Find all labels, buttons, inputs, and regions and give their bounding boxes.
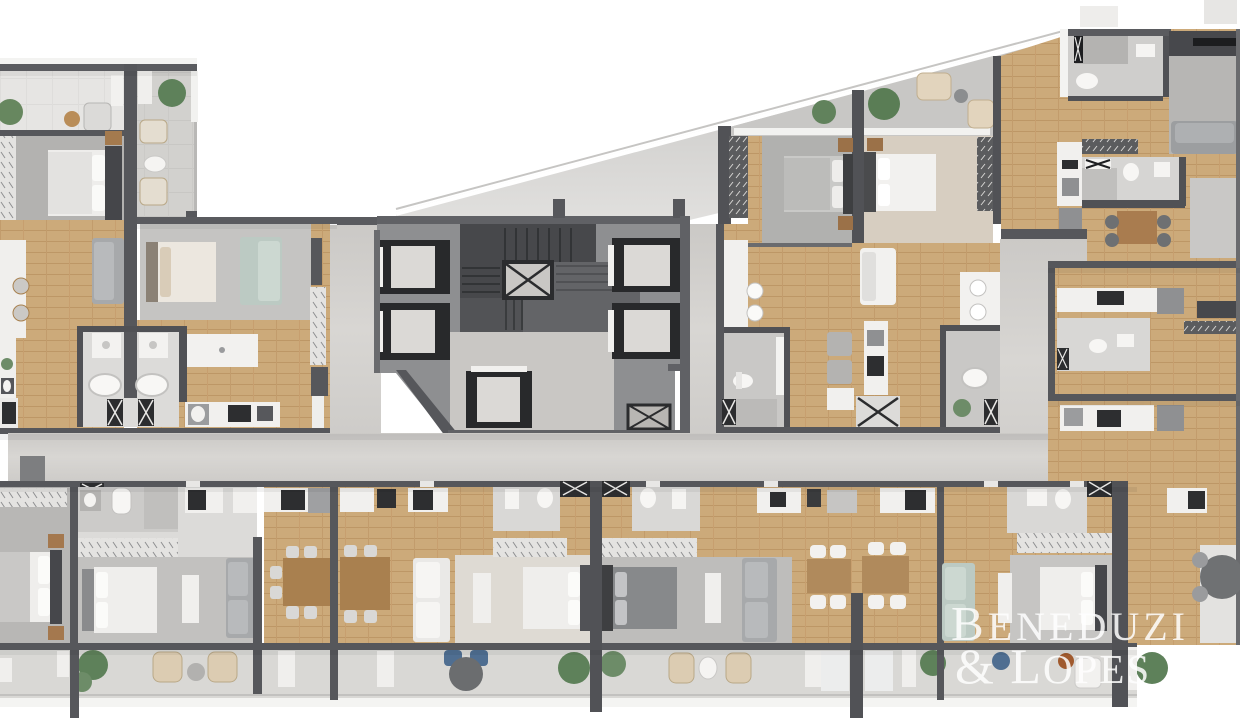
svg-text:& LOPES: & LOPES [955, 638, 1151, 694]
